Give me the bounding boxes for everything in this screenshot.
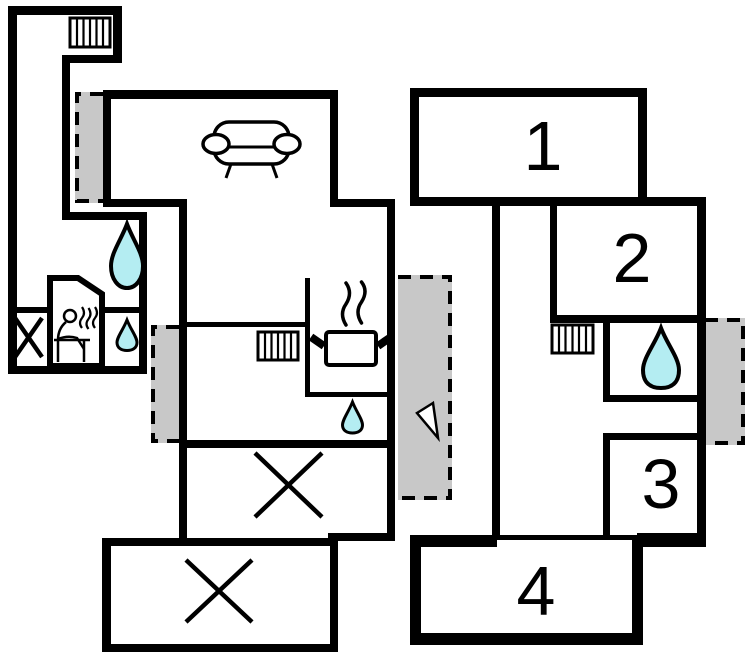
radiator-icon	[552, 325, 593, 353]
water-drop-icon	[343, 402, 363, 433]
sauna-icon	[50, 278, 102, 366]
walls	[8, 6, 706, 652]
radiator-icon	[70, 18, 110, 47]
sauna-person-head	[64, 310, 76, 322]
water-drop-icon	[111, 224, 143, 288]
cross-marker	[186, 560, 252, 622]
cross-marker	[15, 318, 42, 357]
water-drop-icon	[117, 320, 137, 351]
room-label-2: 2	[613, 223, 652, 293]
room-label-3: 3	[642, 449, 681, 519]
steam-icon	[343, 282, 366, 325]
door-marker	[151, 325, 179, 443]
sofa-armrest	[203, 135, 229, 154]
pot-body	[326, 332, 376, 365]
door-marker-main-entrance	[398, 275, 452, 500]
sofa-icon	[203, 122, 300, 178]
water-drop-icon	[643, 328, 679, 388]
door-marker	[75, 92, 103, 203]
floor-plan-canvas	[0, 0, 747, 652]
door-marker-fill	[705, 318, 745, 445]
room-label-4: 4	[517, 556, 556, 626]
door-marker-fill	[75, 92, 103, 203]
door-marker-fill	[398, 275, 452, 500]
room-label-1: 1	[524, 111, 563, 181]
floor-plan: 1 2 3 4	[0, 0, 747, 652]
sofa-armrest	[274, 135, 300, 154]
door-marker	[705, 318, 745, 445]
cross-marker	[255, 453, 322, 517]
door-marker-fill	[151, 325, 179, 443]
radiator-icon	[258, 332, 298, 360]
cooking-pot-icon	[311, 282, 391, 365]
